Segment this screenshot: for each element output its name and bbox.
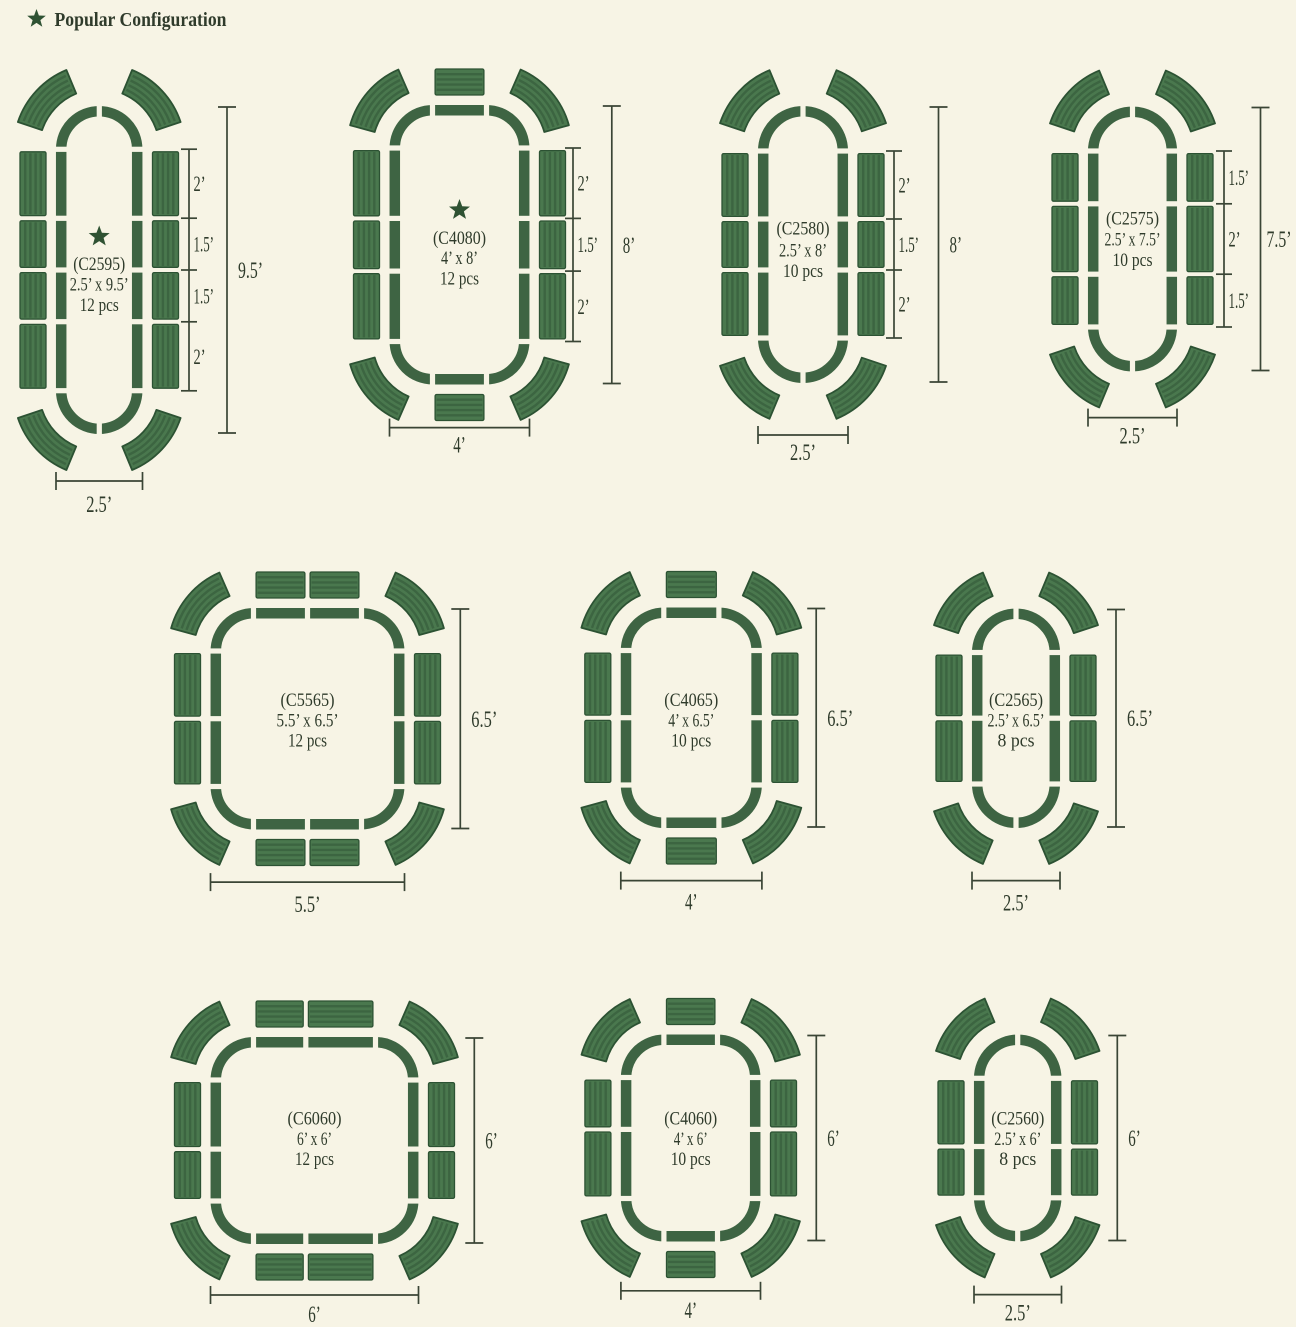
svg-text:(C4065): (C4065): [664, 690, 718, 711]
svg-text:(C4060): (C4060): [664, 1109, 717, 1130]
svg-text:2’: 2’: [578, 294, 590, 319]
svg-text:10 pcs: 10 pcs: [671, 1149, 711, 1170]
svg-text:2’: 2’: [194, 171, 206, 196]
svg-text:2’: 2’: [578, 171, 590, 196]
svg-text:12 pcs: 12 pcs: [440, 268, 479, 289]
svg-text:(C4080): (C4080): [433, 228, 486, 249]
svg-text:10 pcs: 10 pcs: [1113, 250, 1153, 271]
svg-text:2.5’ x 6’: 2.5’ x 6’: [994, 1129, 1041, 1150]
svg-text:(C6060): (C6060): [288, 1109, 342, 1130]
svg-text:2.5’: 2.5’: [1003, 891, 1029, 916]
svg-text:7.5’: 7.5’: [1267, 227, 1292, 252]
svg-text:2.5’: 2.5’: [1005, 1301, 1031, 1326]
svg-text:8’: 8’: [950, 233, 963, 258]
svg-text:4’ x 6.5’: 4’ x 6.5’: [668, 711, 714, 732]
svg-text:4’ x 8’: 4’ x 8’: [441, 248, 478, 269]
svg-text:8 pcs: 8 pcs: [999, 1149, 1036, 1170]
svg-text:2’: 2’: [194, 344, 206, 369]
svg-text:(C2560): (C2560): [991, 1109, 1044, 1130]
svg-text:10 pcs: 10 pcs: [783, 261, 823, 282]
svg-text:2.5’: 2.5’: [790, 440, 816, 465]
svg-text:1.5’: 1.5’: [194, 232, 215, 257]
svg-text:(C2575): (C2575): [1106, 209, 1159, 230]
svg-text:5.5’ x 6.5’: 5.5’ x 6.5’: [277, 711, 339, 732]
svg-text:2.5’ x 8’: 2.5’ x 8’: [779, 240, 827, 261]
svg-text:2.5’ x 7.5’: 2.5’ x 7.5’: [1105, 229, 1161, 250]
svg-text:1.5’: 1.5’: [194, 283, 215, 308]
svg-text:12 pcs: 12 pcs: [288, 731, 327, 752]
svg-text:10 pcs: 10 pcs: [671, 731, 711, 752]
svg-text:6’: 6’: [1128, 1126, 1141, 1151]
svg-text:12 pcs: 12 pcs: [80, 295, 119, 316]
svg-text:6.5’: 6.5’: [827, 706, 853, 731]
svg-text:2.5’ x 9.5’: 2.5’ x 9.5’: [70, 275, 129, 296]
svg-text:2’: 2’: [1229, 227, 1241, 252]
svg-text:1.5’: 1.5’: [1229, 165, 1250, 190]
svg-text:2.5’: 2.5’: [86, 492, 112, 517]
svg-text:6.5’: 6.5’: [471, 707, 497, 732]
svg-text:2’: 2’: [899, 292, 911, 317]
svg-text:2’: 2’: [899, 173, 911, 198]
svg-text:6’: 6’: [827, 1126, 840, 1151]
svg-text:2.5’ x 6.5’: 2.5’ x 6.5’: [988, 711, 1045, 732]
svg-text:(C2580): (C2580): [777, 218, 830, 239]
svg-text:8 pcs: 8 pcs: [998, 731, 1035, 752]
svg-text:9.5’: 9.5’: [238, 258, 263, 283]
svg-text:6’ x 6’: 6’ x 6’: [297, 1129, 332, 1150]
svg-text:4’ x 6’: 4’ x 6’: [674, 1129, 708, 1150]
svg-text:8’: 8’: [623, 233, 636, 258]
svg-text:6’: 6’: [485, 1129, 498, 1154]
svg-text:2.5’: 2.5’: [1120, 424, 1146, 449]
svg-text:(C5565): (C5565): [281, 690, 335, 711]
svg-text:4’: 4’: [453, 433, 466, 458]
svg-text:6’: 6’: [308, 1302, 321, 1327]
svg-text:(C2595): (C2595): [73, 254, 125, 275]
svg-text:1.5’: 1.5’: [578, 232, 599, 257]
svg-text:Popular Configuration: Popular Configuration: [55, 10, 227, 31]
svg-text:4’: 4’: [685, 890, 698, 915]
svg-text:6.5’: 6.5’: [1127, 706, 1153, 731]
svg-text:1.5’: 1.5’: [1229, 288, 1250, 313]
svg-text:1.5’: 1.5’: [899, 232, 920, 257]
svg-text:12 pcs: 12 pcs: [295, 1149, 334, 1170]
svg-text:4’: 4’: [684, 1298, 697, 1323]
svg-text:(C2565): (C2565): [989, 690, 1043, 711]
svg-text:5.5’: 5.5’: [295, 892, 321, 917]
